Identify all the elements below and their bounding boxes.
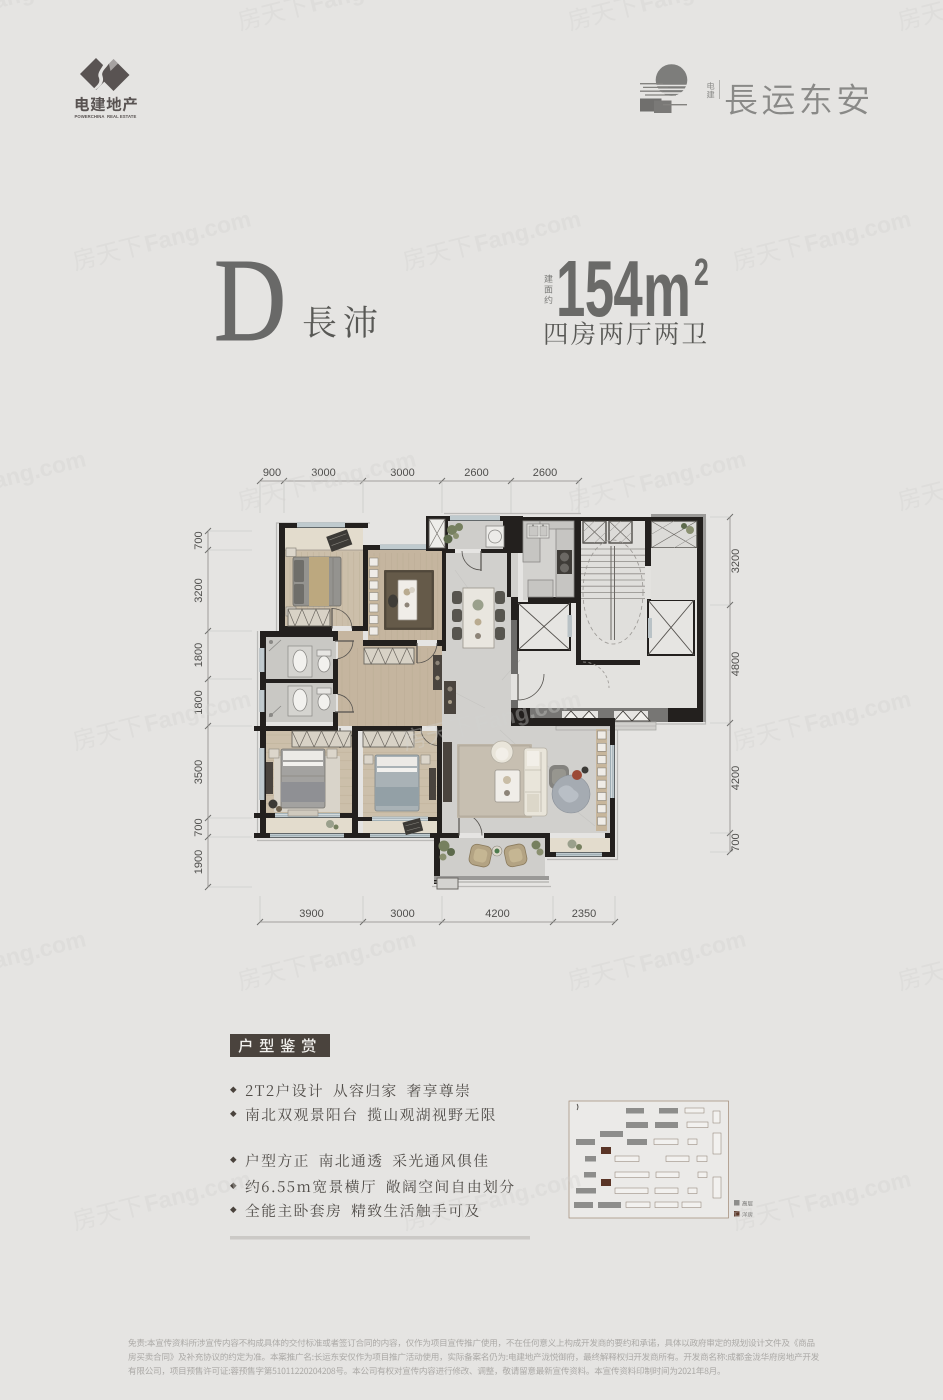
svg-text:2600: 2600 — [533, 467, 557, 479]
svg-text:700: 700 — [193, 818, 205, 836]
svg-text:2600: 2600 — [464, 467, 488, 479]
svg-text:4200: 4200 — [485, 908, 509, 920]
svg-text:2350: 2350 — [572, 908, 596, 920]
svg-text:Fang.com: Fang.com — [637, 0, 749, 17]
svg-text:3500: 3500 — [193, 760, 205, 784]
svg-text:700: 700 — [730, 833, 742, 851]
svg-text:Fang.com: Fang.com — [0, 925, 88, 977]
svg-text:Fang.com: Fang.com — [307, 0, 419, 17]
svg-text:154: 154 — [556, 245, 643, 334]
svg-text:900: 900 — [263, 467, 281, 479]
svg-text:POWERCHINA REAL ESTATE: POWERCHINA REAL ESTATE — [75, 114, 137, 119]
svg-text:m: m — [643, 248, 691, 334]
svg-text:Fang.com: Fang.com — [802, 685, 914, 737]
svg-text:Fang.com: Fang.com — [802, 205, 914, 257]
svg-text:Fang.com: Fang.com — [637, 445, 749, 497]
svg-text:Fang.com: Fang.com — [802, 1165, 914, 1217]
svg-text:D: D — [214, 234, 286, 366]
svg-text:Fang.com: Fang.com — [0, 445, 88, 497]
svg-text:1900: 1900 — [193, 850, 205, 874]
svg-text:3000: 3000 — [390, 908, 414, 920]
svg-text:3200: 3200 — [193, 578, 205, 602]
svg-text:3900: 3900 — [299, 908, 323, 920]
svg-text:Fang.com: Fang.com — [637, 925, 749, 977]
svg-text:3200: 3200 — [730, 549, 742, 573]
svg-text:2: 2 — [694, 250, 709, 293]
svg-text:4800: 4800 — [730, 652, 742, 676]
svg-text:Fang.com: Fang.com — [472, 1165, 584, 1217]
svg-text:Fang.com: Fang.com — [142, 1165, 254, 1217]
svg-text:Fang.com: Fang.com — [307, 445, 419, 497]
svg-text:1800: 1800 — [193, 643, 205, 667]
svg-text:700: 700 — [193, 531, 205, 549]
svg-text:4200: 4200 — [730, 766, 742, 790]
svg-text:Fang.com: Fang.com — [0, 0, 88, 17]
svg-text:Fang.com: Fang.com — [307, 925, 419, 977]
